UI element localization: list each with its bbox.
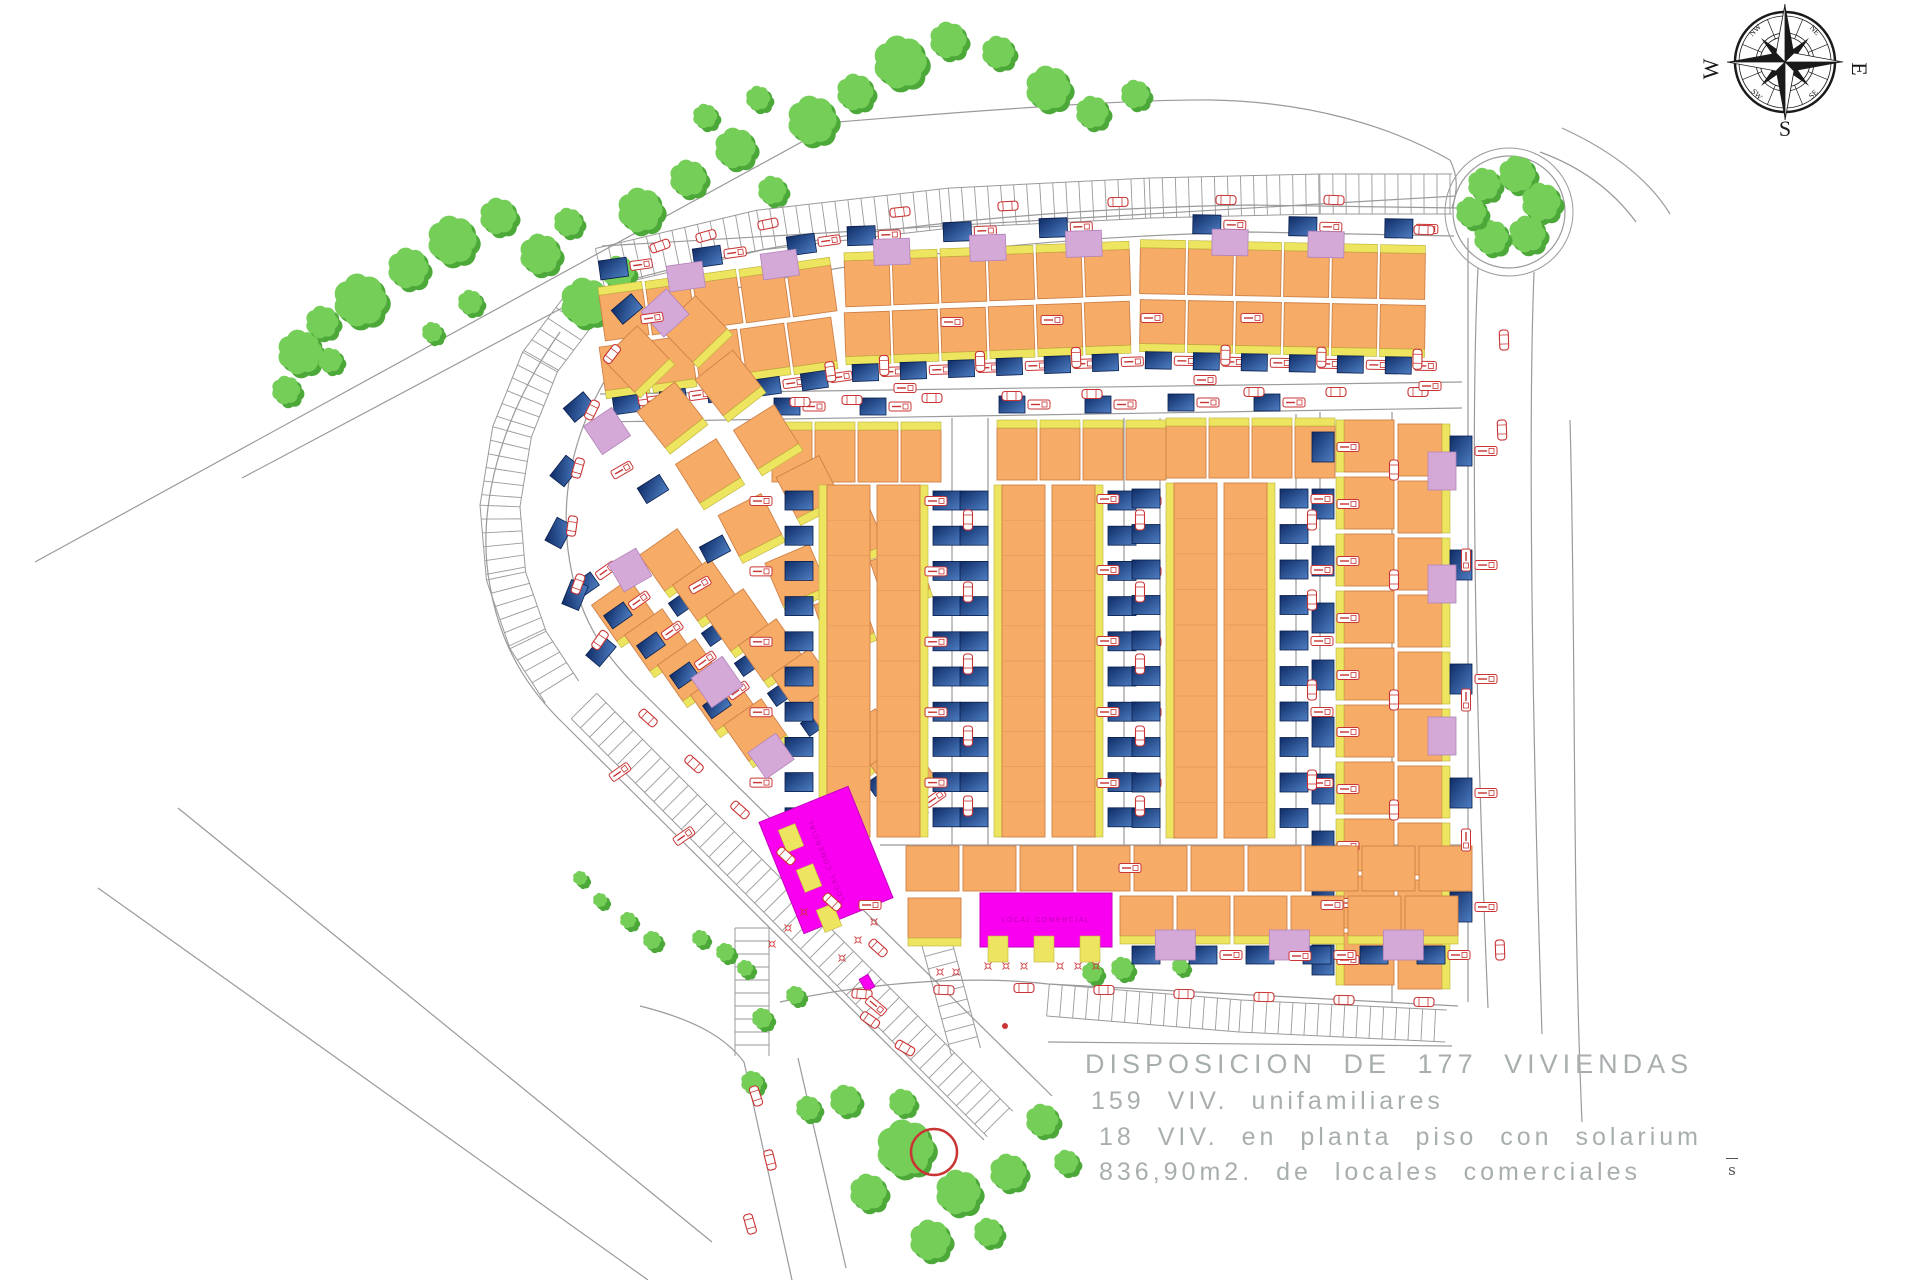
garden-strip	[1331, 348, 1376, 357]
pool	[948, 360, 975, 378]
parked-car-icon	[1254, 992, 1274, 1001]
house	[1188, 301, 1234, 346]
house	[1236, 250, 1282, 297]
parking-stall-line	[1434, 1009, 1436, 1041]
parking-stall-line	[1163, 994, 1165, 1026]
plot-label	[750, 708, 772, 717]
pool	[943, 222, 972, 242]
parking-stall-line	[987, 186, 990, 226]
house	[1380, 253, 1426, 300]
scale-mark: s	[1722, 1158, 1742, 1179]
annex-building	[760, 249, 799, 280]
parked-car-icon	[1308, 770, 1317, 790]
parking-stall-line	[539, 673, 573, 694]
plot-label	[1070, 222, 1092, 232]
house	[940, 255, 987, 303]
parking-stall-line	[495, 595, 533, 607]
parking-stall-line	[939, 189, 942, 229]
house	[1083, 428, 1123, 480]
plot-label	[1337, 671, 1359, 680]
parked-car-icon	[879, 355, 889, 375]
parked-car-icon	[1071, 347, 1081, 367]
house	[988, 305, 1035, 351]
house	[1362, 846, 1415, 891]
pool	[1450, 778, 1472, 808]
parking-stall-line	[1330, 1004, 1332, 1036]
pool	[1280, 489, 1308, 508]
parking-stall-line	[1131, 179, 1133, 219]
parking-stall-line	[928, 961, 957, 969]
house	[1236, 302, 1282, 347]
pool	[699, 535, 730, 563]
plot-label	[1311, 566, 1333, 575]
parking-stall-line	[945, 1024, 974, 1032]
pool	[1337, 356, 1363, 373]
house	[787, 317, 837, 367]
pool	[637, 474, 669, 503]
parking-stall-line	[1267, 175, 1268, 215]
garden-strip	[1140, 240, 1185, 249]
pool	[785, 632, 813, 651]
garden-strip	[819, 485, 827, 837]
house	[1209, 426, 1249, 478]
house	[844, 259, 891, 307]
buildings-layer: LOCAL COMERCIALLOCAL COMERCIAL	[545, 215, 1497, 992]
tree-icon	[620, 912, 636, 928]
compass-n: N	[1777, 0, 1793, 4]
parking-stall-line	[1356, 1006, 1358, 1038]
pool	[1385, 219, 1413, 238]
pool	[1280, 738, 1308, 757]
pool	[1289, 355, 1315, 372]
parking-stall-line	[1053, 183, 1055, 223]
parked-car-icon	[964, 510, 973, 530]
plot-label	[1475, 561, 1497, 570]
compass-s: S	[1779, 116, 1791, 141]
parking-stall-line	[1202, 997, 1204, 1029]
plot-label	[878, 230, 900, 240]
terrace-group	[1097, 483, 1333, 838]
parking-stall-line	[1066, 182, 1068, 222]
tree-icon	[1026, 1104, 1058, 1137]
parked-car-icon	[1108, 197, 1128, 206]
parking-stall-line	[1092, 181, 1094, 221]
flower-icon	[1002, 962, 1009, 969]
plot-label	[1475, 675, 1497, 684]
road-line	[1474, 268, 1488, 1008]
plot-label	[610, 461, 634, 480]
tree-icon	[1082, 962, 1102, 982]
house	[1191, 846, 1244, 891]
house	[844, 311, 891, 357]
pool	[1145, 352, 1171, 369]
parked-car-icon	[1082, 390, 1102, 399]
plot-label	[1028, 400, 1050, 409]
parking-stall-line	[502, 403, 540, 417]
compass-rose: NESWNENWSESW	[1698, 0, 1872, 141]
plot-label	[894, 384, 916, 393]
tree-icon	[796, 1096, 820, 1120]
tree-icon	[974, 1218, 1002, 1246]
parked-car-icon	[1002, 392, 1022, 401]
porch	[1034, 936, 1054, 962]
plot-label	[1041, 316, 1063, 325]
garden-strip	[908, 938, 961, 946]
tree-icon	[982, 36, 1014, 69]
parked-car-icon	[890, 206, 911, 217]
parking-stall-line	[1252, 1001, 1254, 1033]
compass-e: E	[1847, 62, 1872, 75]
plot-label	[889, 402, 911, 411]
garden-strip	[1442, 766, 1450, 818]
tree-icon	[830, 1085, 860, 1115]
plot-label	[1289, 952, 1311, 961]
parking-stall-line	[500, 606, 538, 620]
parking-stall-line	[1105, 180, 1107, 220]
annex-building	[666, 261, 705, 292]
garden-strip	[1442, 652, 1450, 704]
pool	[933, 597, 961, 616]
parked-car-icon	[684, 754, 705, 774]
parking-stall-line	[509, 629, 545, 646]
parking-stall-line	[517, 642, 553, 660]
garden-strip	[1040, 420, 1080, 428]
parking-stall-line	[1265, 1001, 1267, 1033]
tree-icon	[593, 893, 607, 907]
pool	[900, 362, 927, 380]
pool	[785, 561, 813, 580]
plot-label	[1311, 708, 1333, 717]
pool	[1132, 773, 1160, 792]
pool	[1132, 560, 1160, 579]
garden-strip	[1235, 346, 1280, 355]
pool	[785, 702, 813, 721]
parked-car-icon	[1221, 345, 1230, 365]
parking-stall-line	[1137, 992, 1139, 1024]
parking-stall-line	[1027, 184, 1030, 224]
pool	[933, 667, 961, 686]
plot-label	[1097, 566, 1119, 575]
plot-label	[925, 708, 947, 717]
tree-icon	[692, 930, 708, 946]
house	[1332, 252, 1378, 299]
parked-car-icon	[1326, 388, 1346, 397]
garden-strip	[1267, 483, 1275, 838]
parking-stall-line	[646, 236, 654, 275]
plot-label	[925, 567, 947, 576]
pool	[612, 394, 640, 414]
parked-car-icon	[790, 398, 810, 407]
plot-label	[1337, 557, 1359, 566]
plot-label	[974, 226, 996, 236]
plot-label	[1194, 376, 1216, 385]
parking-stall-line	[480, 505, 520, 507]
tree-icon	[758, 176, 786, 204]
parking-band-edge	[922, 944, 952, 1056]
garden-strip	[1139, 344, 1184, 353]
pool	[1168, 394, 1194, 411]
house	[997, 428, 1037, 480]
parked-car-icon	[638, 708, 659, 728]
house	[1126, 428, 1166, 480]
pool	[933, 737, 961, 756]
legend-line-solarium: 18 VIV. en planta piso con solarium	[1085, 1119, 1702, 1155]
legend-line-comerciales: 836,90m2. de locales comerciales	[1085, 1155, 1702, 1189]
plot-label	[1097, 495, 1119, 504]
pool	[960, 702, 988, 721]
parked-car-icon	[964, 654, 973, 674]
parking-stall-line	[925, 949, 954, 957]
pool	[1039, 218, 1068, 238]
parking-stall-line	[532, 340, 566, 361]
parking-stall-line	[1150, 993, 1152, 1025]
parking-stall-line	[484, 481, 524, 485]
parking-stall-line	[1408, 1008, 1410, 1040]
parked-car-icon	[842, 396, 862, 405]
garden-strip	[1086, 345, 1131, 355]
porch	[1080, 936, 1100, 962]
plot-label	[1097, 779, 1119, 788]
parked-car-icon	[964, 726, 973, 746]
house	[740, 323, 790, 373]
parking-stall-line	[488, 454, 527, 462]
tree-icon	[1468, 168, 1500, 201]
parking-stall-line	[1079, 182, 1081, 222]
parking-band-edge	[480, 286, 572, 703]
parking-stall-line	[1239, 1000, 1241, 1032]
house	[908, 898, 961, 938]
house	[906, 846, 959, 891]
garden-strip	[1209, 418, 1249, 426]
terrace-group	[925, 485, 1161, 837]
plot-label	[1475, 447, 1497, 456]
house	[1140, 248, 1186, 295]
tree-icon	[1054, 1150, 1078, 1174]
parking-stall-line	[938, 999, 967, 1007]
tree-icon	[643, 931, 661, 949]
legend-line-total: DISPOSICION DE 177 VIVIENDAS	[1085, 1046, 1702, 1083]
parked-car-icon	[566, 515, 578, 536]
garden-strip	[1252, 418, 1292, 426]
parking-stall-line	[493, 427, 532, 438]
house	[901, 430, 941, 482]
parking-stall-line	[913, 192, 917, 232]
tree-icon	[458, 290, 482, 314]
legend-line-unifamiliares: 159 VIV. unifamiliares	[1085, 1083, 1702, 1119]
pool	[860, 398, 886, 415]
parking-stall-line	[926, 191, 930, 231]
parking-stall-line	[497, 416, 535, 428]
pool	[1280, 809, 1308, 828]
parking-stall-line	[1175, 177, 1176, 217]
parking-stall-line	[1125, 991, 1127, 1023]
pool	[1280, 773, 1308, 792]
plot-label	[630, 259, 653, 271]
parked-car-icon	[964, 796, 973, 816]
parking-stall-line	[1060, 985, 1063, 1017]
garden-strip	[901, 422, 941, 430]
parked-car-icon	[1308, 590, 1317, 610]
road-line	[1570, 420, 1582, 1122]
parked-car-icon	[1136, 654, 1145, 674]
pool	[785, 667, 813, 686]
parking-stall-line	[1382, 1007, 1384, 1039]
parked-car-icon	[975, 351, 985, 371]
plot-label	[1283, 398, 1305, 407]
parked-car-icon	[1334, 995, 1354, 1004]
parking-stall-line	[1228, 999, 1230, 1031]
parked-car-icon	[763, 1149, 777, 1171]
garden-strip	[1295, 418, 1335, 426]
house	[1084, 301, 1131, 347]
parking-stall-line	[1254, 176, 1255, 216]
house	[1166, 426, 1206, 478]
parked-car-icon	[1308, 680, 1317, 700]
parking-stall-line	[510, 631, 546, 648]
plot-label	[1334, 951, 1356, 960]
house	[940, 307, 987, 353]
scale-letter: s	[1728, 1161, 1736, 1179]
plot-label	[750, 567, 772, 576]
plot-label	[1224, 220, 1246, 229]
plot-label	[925, 497, 947, 506]
parking-stall-line	[948, 1037, 977, 1045]
parking-stall-line	[1189, 996, 1191, 1028]
pool	[785, 491, 813, 510]
plot-label	[1337, 728, 1359, 737]
garden-strip	[997, 420, 1037, 428]
flower-icon	[768, 940, 775, 947]
parking-stall-line	[1144, 178, 1146, 218]
parking-stall-line	[490, 440, 529, 449]
annex-building	[969, 234, 1006, 261]
tree-icon	[1111, 957, 1133, 979]
tree-icon	[889, 1089, 915, 1115]
plot-label	[1462, 689, 1471, 711]
road-line	[1562, 128, 1670, 214]
tree-icon	[1076, 96, 1108, 129]
plot-label	[1337, 500, 1359, 509]
parked-car-icon	[964, 582, 973, 602]
plot-label	[859, 901, 881, 910]
plot-label	[1321, 901, 1343, 910]
compass-nw: NW	[1747, 22, 1763, 38]
parked-car-icon	[649, 238, 671, 253]
plot-label	[1337, 614, 1359, 623]
garden-strip	[894, 353, 939, 363]
parking-stall-line	[948, 188, 951, 228]
house	[1020, 846, 1073, 891]
parking-stall-line	[1215, 998, 1217, 1030]
pool	[1280, 631, 1308, 650]
plot-label	[1097, 637, 1119, 646]
parking-stall-line	[491, 583, 530, 593]
pool	[800, 370, 828, 390]
house	[858, 430, 898, 482]
tree-icon	[272, 376, 300, 404]
annex-building	[873, 238, 910, 265]
parking-band-edge	[1047, 1016, 1446, 1042]
flower-icon	[1056, 962, 1063, 969]
parking-band-edge	[950, 936, 980, 1048]
plot-label	[925, 637, 947, 646]
plot-label	[1114, 400, 1136, 409]
commercial-label: LOCAL COMERCIAL	[1002, 917, 1091, 924]
plot-label	[1241, 314, 1263, 323]
road-line	[178, 808, 712, 1242]
flower-icon	[984, 962, 991, 969]
parking-stall-line	[532, 663, 566, 683]
garden-strip	[1166, 418, 1206, 426]
parking-stall-line	[1320, 174, 1321, 214]
pool	[960, 561, 988, 580]
tree-icon	[573, 871, 587, 885]
annex-building	[1065, 230, 1102, 257]
parking-stall-line	[1176, 995, 1178, 1027]
parking-stall-line	[1240, 176, 1241, 216]
plot-label	[1141, 314, 1163, 323]
plot-label	[1220, 951, 1242, 960]
parked-car-icon	[1390, 800, 1399, 820]
parking-stall-line	[482, 495, 522, 498]
house	[1248, 846, 1301, 891]
pool	[1312, 432, 1334, 462]
garden-strip	[994, 485, 1002, 837]
house	[963, 846, 1016, 891]
pool	[598, 257, 628, 280]
pool	[933, 526, 961, 545]
pool	[1280, 560, 1308, 579]
pool	[785, 526, 813, 545]
pool	[785, 773, 813, 792]
parking-stall-line	[1086, 987, 1089, 1019]
house	[1036, 251, 1083, 299]
parking-stall-line	[524, 350, 559, 370]
flower-icon	[854, 936, 861, 943]
pool	[996, 358, 1023, 376]
road-line	[98, 888, 648, 1280]
pool	[1092, 354, 1119, 372]
plot-label	[1448, 951, 1470, 960]
annex-building	[1428, 565, 1456, 603]
house	[1036, 303, 1083, 349]
parking-stall-line	[1369, 1006, 1371, 1038]
parked-car-icon	[1136, 582, 1145, 602]
parked-car-icon	[1094, 986, 1114, 995]
tree-icon	[554, 208, 582, 236]
road-line	[1531, 272, 1542, 1034]
annex-building	[1212, 229, 1248, 256]
plot-label	[1475, 903, 1497, 912]
house	[1398, 766, 1442, 818]
parked-car-icon	[1499, 330, 1509, 350]
parked-car-icon	[1497, 420, 1507, 440]
parking-stall-line	[1304, 1003, 1306, 1035]
tree-icon	[422, 322, 442, 342]
parked-car-icon	[1413, 349, 1422, 369]
parking-stall-line	[1040, 183, 1042, 223]
plot-label	[1337, 785, 1359, 794]
annex-building	[1383, 930, 1423, 960]
house	[1252, 426, 1292, 478]
annex-building	[1308, 231, 1344, 258]
garden-strip	[1166, 483, 1174, 838]
parked-car-icon	[1495, 940, 1505, 960]
parking-stall-line	[1278, 1002, 1280, 1034]
parked-car-icon	[868, 938, 889, 958]
house	[1305, 846, 1358, 891]
parking-stall-line	[517, 365, 553, 383]
